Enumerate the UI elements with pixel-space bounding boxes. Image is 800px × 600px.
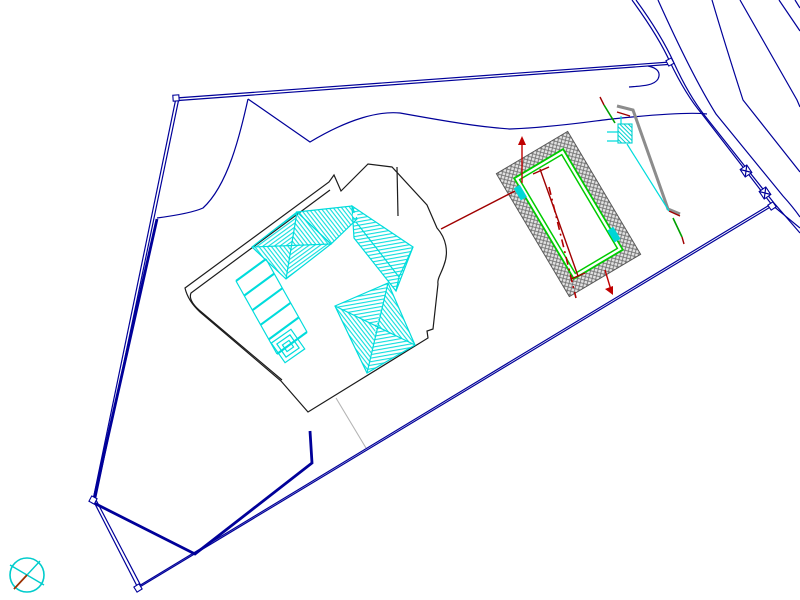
boundary-inner-line (96, 65, 770, 586)
roof-drain-dot (359, 366, 364, 371)
north-needle (14, 575, 27, 589)
wall-gray-line (617, 106, 680, 214)
corner-marker (173, 95, 179, 101)
corner-marker (768, 202, 776, 210)
platform-interior-wall (397, 167, 398, 216)
wall-green-mark (673, 218, 682, 237)
driveway-curb-hook (629, 66, 659, 87)
house-roofs[interactable] (252, 206, 415, 373)
roof-east-slab (352, 206, 413, 291)
terrain-curve-line (157, 99, 248, 218)
roof-drain-dot (353, 213, 358, 218)
house-platform[interactable] (185, 164, 446, 412)
north-symbol-icon[interactable] (10, 558, 44, 592)
road-lines[interactable] (632, 0, 800, 233)
pergola-beams (236, 259, 307, 354)
garden-fence-line[interactable] (92, 431, 312, 554)
wall-ladder-icon (607, 116, 632, 143)
road-line (712, 0, 800, 172)
boundary-thick-west-edge (94, 219, 157, 499)
road-line (658, 0, 800, 217)
road-marker-crossed-box-icon (740, 165, 752, 177)
road-line (795, 0, 800, 8)
pool[interactable] (496, 131, 640, 296)
wall-red-mark (617, 112, 630, 116)
utility-line-house-to-pool (441, 191, 515, 229)
road-line (779, 0, 800, 31)
property-boundary[interactable] (93, 62, 772, 588)
roof-south-hip (335, 283, 415, 373)
boundary-outer-line (93, 62, 772, 588)
pergola[interactable] (236, 259, 307, 354)
wall-red-mark (682, 237, 684, 244)
survey-markers[interactable] (89, 58, 776, 592)
gray-connector-line (336, 398, 366, 448)
section-tick-bottom (605, 270, 613, 295)
site-plan-canvas[interactable] (0, 0, 800, 600)
road-line (740, 0, 800, 107)
wall-red-mark (600, 97, 604, 105)
site-plan-drawing (0, 0, 800, 600)
